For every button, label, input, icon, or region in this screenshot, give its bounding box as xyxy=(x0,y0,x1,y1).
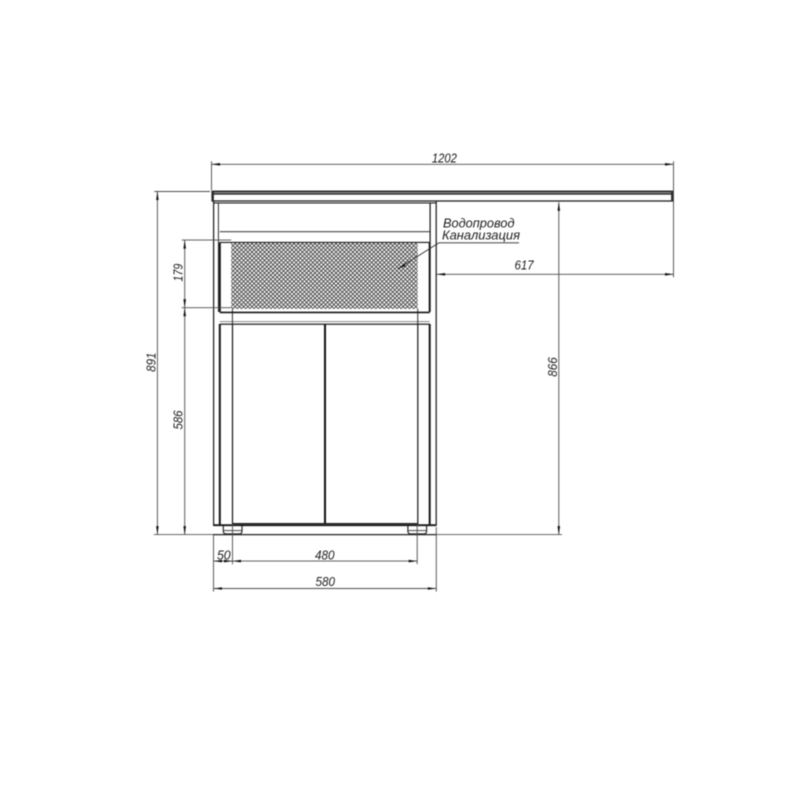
svg-text:179: 179 xyxy=(172,264,186,282)
svg-text:866: 866 xyxy=(546,357,560,377)
svg-text:Канализация: Канализация xyxy=(442,228,520,242)
svg-text:480: 480 xyxy=(315,548,335,562)
svg-text:617: 617 xyxy=(515,259,535,273)
svg-text:1202: 1202 xyxy=(432,152,457,166)
svg-text:580: 580 xyxy=(316,575,336,589)
svg-text:586: 586 xyxy=(172,411,186,430)
svg-text:891: 891 xyxy=(145,353,159,372)
svg-text:50: 50 xyxy=(217,548,231,562)
